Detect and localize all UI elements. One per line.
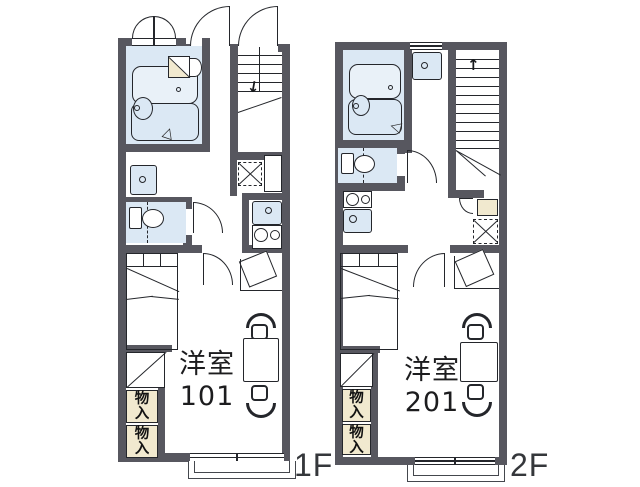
wall [335, 245, 408, 253]
room-label-201: 洋室 201 [388, 355, 476, 419]
storage-box: 物入 [342, 424, 371, 455]
stove-burner-small [361, 195, 370, 204]
stair-tread [456, 77, 499, 78]
stair-direction-arrow: ↑ [467, 58, 480, 73]
bathtub [349, 64, 401, 99]
wash-bowl-tap [353, 103, 359, 109]
storage-label: 物入 [349, 391, 365, 421]
wall [397, 140, 405, 154]
room-name: 洋室 [388, 355, 476, 387]
stair-tread [456, 131, 499, 132]
understair-storage [477, 199, 498, 216]
stove-burner-large [346, 193, 359, 206]
stair-tread [456, 140, 499, 141]
sink-tap [349, 215, 357, 223]
understair-door [459, 198, 473, 214]
wall [335, 183, 405, 191]
window-lock [454, 457, 456, 465]
desk [455, 249, 495, 287]
wall [448, 42, 456, 198]
stair-tread [456, 148, 499, 149]
washbasin-tap [421, 62, 428, 69]
stair-tread [456, 86, 499, 87]
floor-label-2f: 2F [510, 447, 549, 484]
chair-seat [467, 324, 484, 340]
balcony-inner-rail [413, 465, 499, 476]
stair-tread [456, 122, 499, 123]
stair-tread [456, 95, 499, 96]
bed-headboard-divider [378, 253, 379, 267]
wall [495, 457, 507, 465]
wall [448, 190, 484, 198]
storage-label: 物入 [349, 426, 365, 456]
stair-turn-line [456, 150, 501, 176]
bed-headboard [340, 266, 398, 267]
kitchen-sink [343, 209, 372, 233]
floor-plan-canvas: △ ↓ [0, 0, 640, 487]
bed-headboard-divider [359, 253, 360, 267]
desk-edge [454, 256, 455, 289]
storage-box: 物入 [342, 389, 371, 422]
bed [340, 253, 398, 350]
wall [335, 457, 415, 465]
room-number: 201 [388, 387, 476, 419]
bathtub-drain [388, 85, 393, 90]
toilet-door [407, 150, 437, 183]
stair-tread [456, 113, 499, 114]
toilet-bowl [354, 155, 375, 173]
toilet-tank [341, 153, 354, 174]
wall [499, 42, 507, 465]
desk-edge [454, 288, 499, 289]
wall [404, 42, 412, 153]
window-rail [410, 45, 442, 46]
wall [335, 42, 410, 50]
stair-tread [456, 104, 499, 105]
room-door [413, 253, 445, 287]
floor-plan-2f: △ ↑ [0, 0, 640, 487]
